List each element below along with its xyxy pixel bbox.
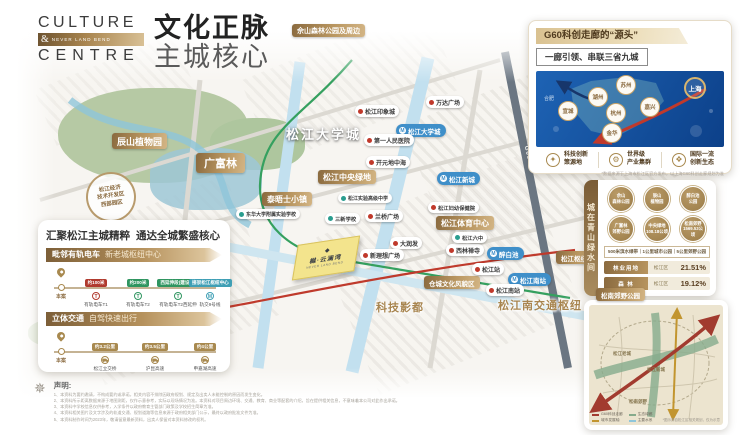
origin-node xyxy=(58,348,65,355)
g60-city-hefei: 合肥 xyxy=(544,95,554,102)
stop-distance-badge: 接驳松江枢纽中心 xyxy=(189,279,232,287)
car-icon: ⛟ xyxy=(151,356,159,364)
circle-line2: 公园 xyxy=(681,199,705,205)
g60-feature: ⚙ 世界级 产业集群 xyxy=(598,152,661,168)
stat-scope: 松江区 xyxy=(648,264,674,271)
tram-section-sub: 新老城枢纽中心 xyxy=(105,248,161,262)
car-icon: ⛟ xyxy=(101,356,109,364)
hospital-cross-icon xyxy=(367,138,372,143)
brand-gold-bar: & NEVER LAND BEND xyxy=(38,33,144,46)
brand-logo: CULTURE & NEVER LAND BEND CENTRE 文化正脉 主城… xyxy=(38,14,270,73)
poi-badge-songjiang-south-station: 松江南站 xyxy=(486,284,524,296)
mall-icon xyxy=(368,214,373,219)
metro-badge-zuibaichi: M醉白池 xyxy=(487,247,524,260)
minimap-graphics xyxy=(589,305,723,425)
stat-label: 林业用地 xyxy=(604,261,648,274)
disclaimer-line: 5、本资料制作时间为2023年，敬请留意最新资料，出卖人保留对本资料修改的权利。 xyxy=(54,417,400,423)
drive-stop: 约4公里 ⛟ 申嘉湖高速 xyxy=(184,335,226,372)
origin-node xyxy=(58,284,65,291)
metro-m-icon: M xyxy=(399,127,406,134)
poi-badge-wanda-plaza: 万达广场 xyxy=(426,96,464,108)
poi-badge-lanqiao-plaza: 兰桥广场 xyxy=(365,210,403,222)
legend-swatch-red xyxy=(592,414,599,416)
poi-badge-kaiyuan-mediterranean: 开元地中海 xyxy=(366,156,410,168)
poi-label: 松江六中 xyxy=(462,234,483,242)
eco-circle: 广富林郊野公园 xyxy=(608,216,634,242)
poi-label: 松江站 xyxy=(482,265,500,274)
map-text-university-town: 松江大学城 xyxy=(286,124,361,143)
feature-line1: 世界级 xyxy=(627,152,645,158)
eco-stats-card: 城在青山绿水间 佘山森林公园 辰山植物园 醉白池公园 广富林郊野公园 中央绿地1… xyxy=(584,180,716,296)
poi-label: 松江印象城 xyxy=(365,107,395,116)
feature-line1: 科技创新 xyxy=(564,152,588,158)
poi-label: 兰桥广场 xyxy=(375,212,399,221)
g60-city-circle: 宣城 xyxy=(558,101,578,121)
train-icon xyxy=(475,267,480,272)
drive-section-label: 立体交通 xyxy=(52,312,84,326)
mall-icon xyxy=(393,241,398,246)
map-text-south-transport-hub: 松江南交通枢纽 xyxy=(498,297,582,313)
mall-icon xyxy=(369,160,374,165)
poi-badge-xilin-temple: 西林禅寺 xyxy=(446,244,484,256)
school-icon xyxy=(341,196,346,201)
tram-stop: 接驳松江枢纽中心 M 轨交9号线 xyxy=(189,271,231,308)
feature-line2: 策源地 xyxy=(564,160,582,166)
g60-corridor-card: G60科创走廊的“源头” 一廊引领、串联三省九城 合肥 苏州 湖州 宣城 杭州 … xyxy=(528,20,732,174)
transit-title-left: 汇聚松江主城精粹 xyxy=(46,228,130,243)
poi-badge-sanxin-school: 三新学校 xyxy=(325,213,360,224)
stat-scope: 松江区 xyxy=(648,280,674,287)
stat-value: 19.12% xyxy=(674,279,710,288)
ecology-icon: ❖ xyxy=(672,153,686,167)
circle-line2: 108.18公顷 xyxy=(645,229,669,235)
stop-distance-badge: 约200米 xyxy=(127,279,150,287)
poi-badge-maternity-hospital: 松江妇幼保健院 xyxy=(428,202,479,213)
drive-line-diagram: 本案 约3.2公里 ⛟ 松江立交桥 约3.5公里 ⛟ 沪昆高速 约4公里 ⛟ 申… xyxy=(46,326,222,371)
circle-line2: 森林公园 xyxy=(609,199,633,205)
planning-minimap-card: 松江老城 松江新城 松南郊野 G60科创走廊 生态绿廊 城市发展轴 主要水系 *… xyxy=(584,300,728,430)
minimap-label: 松江老城 xyxy=(613,351,631,357)
location-pin-icon xyxy=(55,330,66,341)
school-icon xyxy=(455,235,460,240)
metro-badge-xincheng: M松江新城 xyxy=(437,172,480,185)
g60-caption: *数据来源于上海市松江区官方发布，以上海G60科创走廊规划为准 xyxy=(536,171,724,177)
eco-circle-grid: 佘山森林公园 辰山植物园 醉白池公园 广富林郊野公园 中央绿地108.18公顷 … xyxy=(604,186,710,242)
origin-label: 本案 xyxy=(48,293,74,300)
poi-badge-experimental-high-school: 松江实验高级中学 xyxy=(338,193,392,203)
feature-line2: 产业集群 xyxy=(627,160,651,166)
mall-icon xyxy=(363,253,368,258)
circle-line2: 1569.53公顷 xyxy=(681,226,705,237)
poi-badge-first-peoples-hospital: 第一人民医院 xyxy=(364,134,414,146)
map-badge-cangcheng-district: 仓城文化风貌区 xyxy=(424,276,480,289)
map-badge-chenshan-garden: 辰山植物园 xyxy=(112,133,167,149)
g60-city-circle: 湖州 xyxy=(588,87,608,107)
minimap-caption: *图示源自松江区相关规划，仅为示意 xyxy=(663,418,720,423)
poi-badge-impression-city: 松江印象城 xyxy=(355,105,399,117)
stop-distance-badge: 约3.2公里 xyxy=(92,343,118,351)
brand-tagline: NEVER LAND BEND xyxy=(52,37,111,42)
map-badge-songnan-country-park: 松南郊野公园 xyxy=(596,288,645,301)
map-badge-sports-center: 松江体育中心 xyxy=(436,216,494,230)
map-badge-central-green: 松江中央绿地 xyxy=(318,170,376,184)
metro-m-icon: M xyxy=(511,276,518,283)
map-badge-sheshan-park: 佘山森林公园及周边 xyxy=(292,24,365,37)
g60-city-circle: 金华 xyxy=(602,123,622,143)
brand-ampersand: & xyxy=(41,34,49,45)
g60-subtitle-box: 一廊引领、串联三省九城 xyxy=(536,48,648,66)
metro-label: 松江南站 xyxy=(520,275,546,285)
poi-label: 新理想广场 xyxy=(370,251,400,260)
eco-distance-strip: 500米滨水绿带｜1公里城市公园｜5公里郊野公园 xyxy=(604,246,710,258)
train-icon xyxy=(489,288,494,293)
minimap-label: 松南郊野 xyxy=(629,399,647,405)
poi-label: 松江南站 xyxy=(496,286,520,295)
drive-stop: 约3.5公里 ⛟ 沪昆高速 xyxy=(134,335,176,372)
metro-m-icon: M xyxy=(440,175,447,182)
headline-subtitle: 主城核心 xyxy=(154,42,270,73)
eco-circle: 佘山森林公园 xyxy=(608,186,634,212)
poi-badge-no6-middle-school: 松江六中 xyxy=(452,232,487,243)
g60-shanghai-circle: 上海 xyxy=(684,77,706,99)
car-icon: ⛟ xyxy=(201,356,209,364)
disclaimer-heading: 声明: xyxy=(54,380,400,391)
eco-circle: 中央绿地108.18公顷 xyxy=(644,216,670,242)
g60-city-circle: 嘉兴 xyxy=(640,97,660,117)
minimap-label: 松江新城 xyxy=(647,367,665,373)
legend-swatch-gold xyxy=(592,420,599,422)
mall-icon xyxy=(358,109,363,114)
temple-icon xyxy=(449,248,454,253)
g60-title-ribbon: G60科创走廊的“源头” xyxy=(536,28,688,44)
tram-section-label: 毗邻有轨电车 xyxy=(52,248,100,262)
transit-info-card: 汇聚松江主城精粹 通达全城繁盛核心 毗邻有轨电车 新老城枢纽中心 本案 约100… xyxy=(38,220,230,372)
tram-icon: T xyxy=(92,292,100,300)
legend-swatch-green xyxy=(629,414,636,416)
school-icon xyxy=(328,216,333,221)
tram-stop: 约100米 T 有轨电车T1 xyxy=(75,271,117,308)
g60-city-circle: 苏州 xyxy=(616,75,636,95)
planning-minimap: 松江老城 松江新城 松南郊野 G60科创走廊 生态绿廊 城市发展轴 主要水系 *… xyxy=(589,305,723,425)
poi-label: 西林禅寺 xyxy=(456,246,480,255)
hospital-cross-icon xyxy=(431,205,436,210)
map-text-film-tech-zone: 科技影都 xyxy=(376,299,424,315)
map-badge-thames-town: 泰晤士小镇 xyxy=(262,192,312,206)
headline-title: 文化正脉 xyxy=(154,14,270,42)
legend-label: 生态绿廊 xyxy=(638,412,653,417)
eco-circle: 松南郊野1569.53公顷 xyxy=(680,216,706,242)
metro-label: 松江大学城 xyxy=(408,126,441,136)
disclaimer-block: ✵ 声明: 1、本资料为要约邀请，不构成要约或承诺，相关内容不排除因政府规划、规… xyxy=(34,380,504,423)
stop-name: 松江立交桥 xyxy=(84,366,126,372)
stop-distance-badge: 约4公里 xyxy=(194,343,216,351)
poi-badge-songjiang-station: 松江站 xyxy=(472,263,504,275)
circle-line2: 植物园 xyxy=(645,199,669,205)
circle-line2: 郊野公园 xyxy=(609,229,633,235)
eco-circle: 辰山植物园 xyxy=(644,186,670,212)
map-badge-guangfulin: 广富林 xyxy=(196,153,245,173)
poi-badge-xinlixiang-plaza: 新理想广场 xyxy=(360,249,404,261)
poi-label: 第一人民医院 xyxy=(374,136,410,145)
metro-label: 醉白池 xyxy=(499,249,519,259)
innovation-icon: ✦ xyxy=(546,153,560,167)
tram-stop: 约200米 T 有轨电车T2 xyxy=(117,271,159,308)
g60-feature-row: ✦ 科技创新 策源地 ⚙ 世界级 产业集群 ❖ 国际一流 创新生态 xyxy=(536,152,724,168)
metro-label: 松江新城 xyxy=(449,174,475,184)
drive-section-sub: 自驾快速出行 xyxy=(89,312,137,326)
compass-icon: ✵ xyxy=(34,380,46,423)
poi-badge-rt-mart: 大润发 xyxy=(390,237,422,249)
stop-name: 沪昆高速 xyxy=(134,366,176,372)
poi-label: 大润发 xyxy=(400,239,418,248)
brand-culture: CULTURE xyxy=(38,14,144,32)
minimap-legend: G60科创走廊 生态绿廊 城市发展轴 主要水系 xyxy=(592,412,652,423)
g60-feature: ✦ 科技创新 策源地 xyxy=(536,152,598,168)
eco-circle: 醉白池公园 xyxy=(680,186,706,212)
tram-line-diagram: 本案 约100米 T 有轨电车T1 约200米 T 有轨电车T2 西延伸段(建设… xyxy=(46,262,222,307)
tram-icon: T xyxy=(174,292,182,300)
poi-label: 松江妇幼保健院 xyxy=(438,204,475,212)
stop-name: 轨交9号线 xyxy=(189,302,231,308)
location-pin-icon xyxy=(55,266,66,277)
stop-name: 申嘉湖高速 xyxy=(184,366,226,372)
metro-m-icon: M xyxy=(490,250,497,257)
eco-vertical-title: 城在青山绿水间 xyxy=(584,180,598,296)
stop-distance-badge: 约100米 xyxy=(85,279,108,287)
feature-line2: 创新生态 xyxy=(690,160,714,166)
stop-name: 有轨电车T2 xyxy=(117,302,159,308)
drive-section-ribbon: 立体交通 自驾快速出行 xyxy=(46,312,222,326)
brand-centre: CENTRE xyxy=(38,47,144,65)
g60-feature: ❖ 国际一流 创新生态 xyxy=(661,152,724,168)
legend-swatch-blue xyxy=(629,420,636,422)
tram-icon: T xyxy=(134,292,142,300)
tram-section-ribbon: 毗邻有轨电车 新老城枢纽中心 xyxy=(46,248,222,262)
stop-distance-badge: 约3.5公里 xyxy=(142,343,168,351)
poi-label: 三新学校 xyxy=(335,215,356,223)
poster-canvas: ◆ 樾·云澜湾 NEVER LAND BEND 佘山森林公园及周边 辰山植物园 … xyxy=(0,0,740,435)
g60-region-map: 合肥 苏州 湖州 宣城 杭州 嘉兴 金华 上海 xyxy=(536,71,724,147)
transit-title-right: 通达全城繁盛核心 xyxy=(136,228,220,243)
g60-city-circle: 杭州 xyxy=(606,103,626,123)
stop-name: 有轨电车T1 xyxy=(75,302,117,308)
legend-label: 城市发展轴 xyxy=(601,418,619,423)
origin-label: 本案 xyxy=(48,357,74,364)
mall-icon xyxy=(429,100,434,105)
legend-label: 主要水系 xyxy=(638,418,653,423)
metro-icon: M xyxy=(206,292,214,300)
eco-stat-row: 林业用地 松江区 21.51% xyxy=(604,261,710,274)
industry-icon: ⚙ xyxy=(609,153,623,167)
legend-label: G60科创走廊 xyxy=(601,412,623,417)
feature-line1: 国际一流 xyxy=(690,152,714,158)
poi-label: 开元地中海 xyxy=(376,158,406,167)
poi-label: 东华大学附属实验学校 xyxy=(246,211,296,218)
school-icon xyxy=(239,212,244,217)
poi-label: 松江实验高级中学 xyxy=(348,195,388,202)
stat-value: 21.51% xyxy=(674,263,710,272)
poi-label: 万达广场 xyxy=(436,98,460,107)
poi-badge-donghua-school: 东华大学附属实验学校 xyxy=(236,209,300,219)
drive-stop: 约3.2公里 ⛟ 松江立交桥 xyxy=(84,335,126,372)
